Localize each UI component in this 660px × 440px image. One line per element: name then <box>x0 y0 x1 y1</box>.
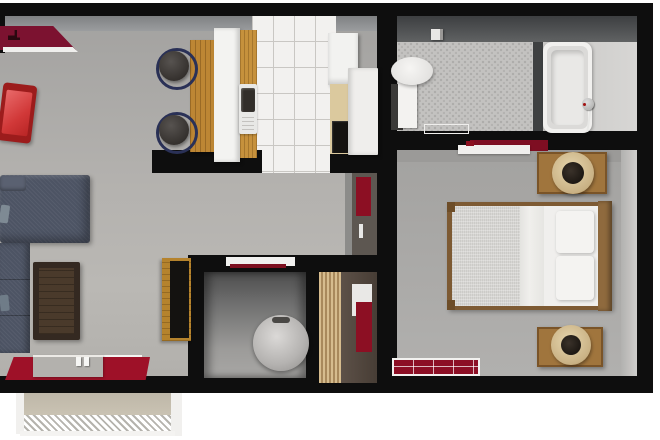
stoop-left-edge <box>16 390 24 434</box>
console-shelf-edge <box>3 47 78 52</box>
bed-post <box>447 300 455 310</box>
bed-folded-sheet <box>520 206 544 306</box>
stoop-right-edge <box>171 392 182 436</box>
bathtub <box>543 42 592 133</box>
bedroom-door-leaf <box>458 145 530 154</box>
outer-wall-east <box>637 3 653 393</box>
lamp-core <box>561 335 581 355</box>
floor-plan-render <box>0 0 660 440</box>
bedroom-east-wall-face <box>621 150 637 376</box>
entry-stoop <box>24 393 171 416</box>
bar-stool-1 <box>159 51 189 81</box>
striped-doormat <box>24 415 171 432</box>
bathtub-basin <box>551 50 584 125</box>
bedroom-grid-rug <box>392 358 480 376</box>
bar-cabinet-run <box>214 28 240 162</box>
candle <box>76 357 81 366</box>
sofa-armrest <box>0 176 26 191</box>
bath-mat <box>424 124 469 134</box>
bathroom-hex-tile-floor <box>397 42 533 133</box>
bed-duvet <box>452 206 520 306</box>
stoop-front-edge <box>20 431 175 436</box>
sink-drainboard <box>242 117 254 130</box>
toilet-tank <box>398 78 417 128</box>
cooktop <box>332 121 349 153</box>
bed-pillow <box>556 256 594 300</box>
candle <box>84 357 89 366</box>
niche-handle <box>359 224 363 238</box>
bed-headboard <box>598 201 612 311</box>
bed-post <box>447 202 455 212</box>
kitchen-tile-floor <box>252 16 336 173</box>
refrigerator <box>348 68 378 155</box>
bathroom-divider-strip <box>533 42 543 133</box>
coffee-table <box>33 262 80 340</box>
water-heater-vent <box>272 317 290 323</box>
toilet-bowl <box>391 57 433 85</box>
louvered-closet-door <box>319 272 341 383</box>
coffee-table-top <box>39 268 74 334</box>
toilet-paper-holder <box>431 29 443 40</box>
bar-stool-2 <box>159 115 189 145</box>
door-handle <box>466 141 474 146</box>
tv-screen <box>170 261 189 338</box>
entry-bench <box>33 355 103 377</box>
water-heater <box>253 315 309 371</box>
lamp-core <box>562 162 584 184</box>
sink-basin <box>241 88 255 112</box>
closet-door-edge <box>230 264 286 268</box>
niche-hanging-clothes <box>356 177 371 216</box>
bed-pillow <box>556 211 594 253</box>
sofa-pillow <box>0 295 10 312</box>
accent-chair-seat <box>1 90 32 137</box>
faucet-red-dot <box>583 103 586 106</box>
wardrobe-hanging-clothes <box>356 302 372 352</box>
outer-wall-north <box>0 3 652 16</box>
